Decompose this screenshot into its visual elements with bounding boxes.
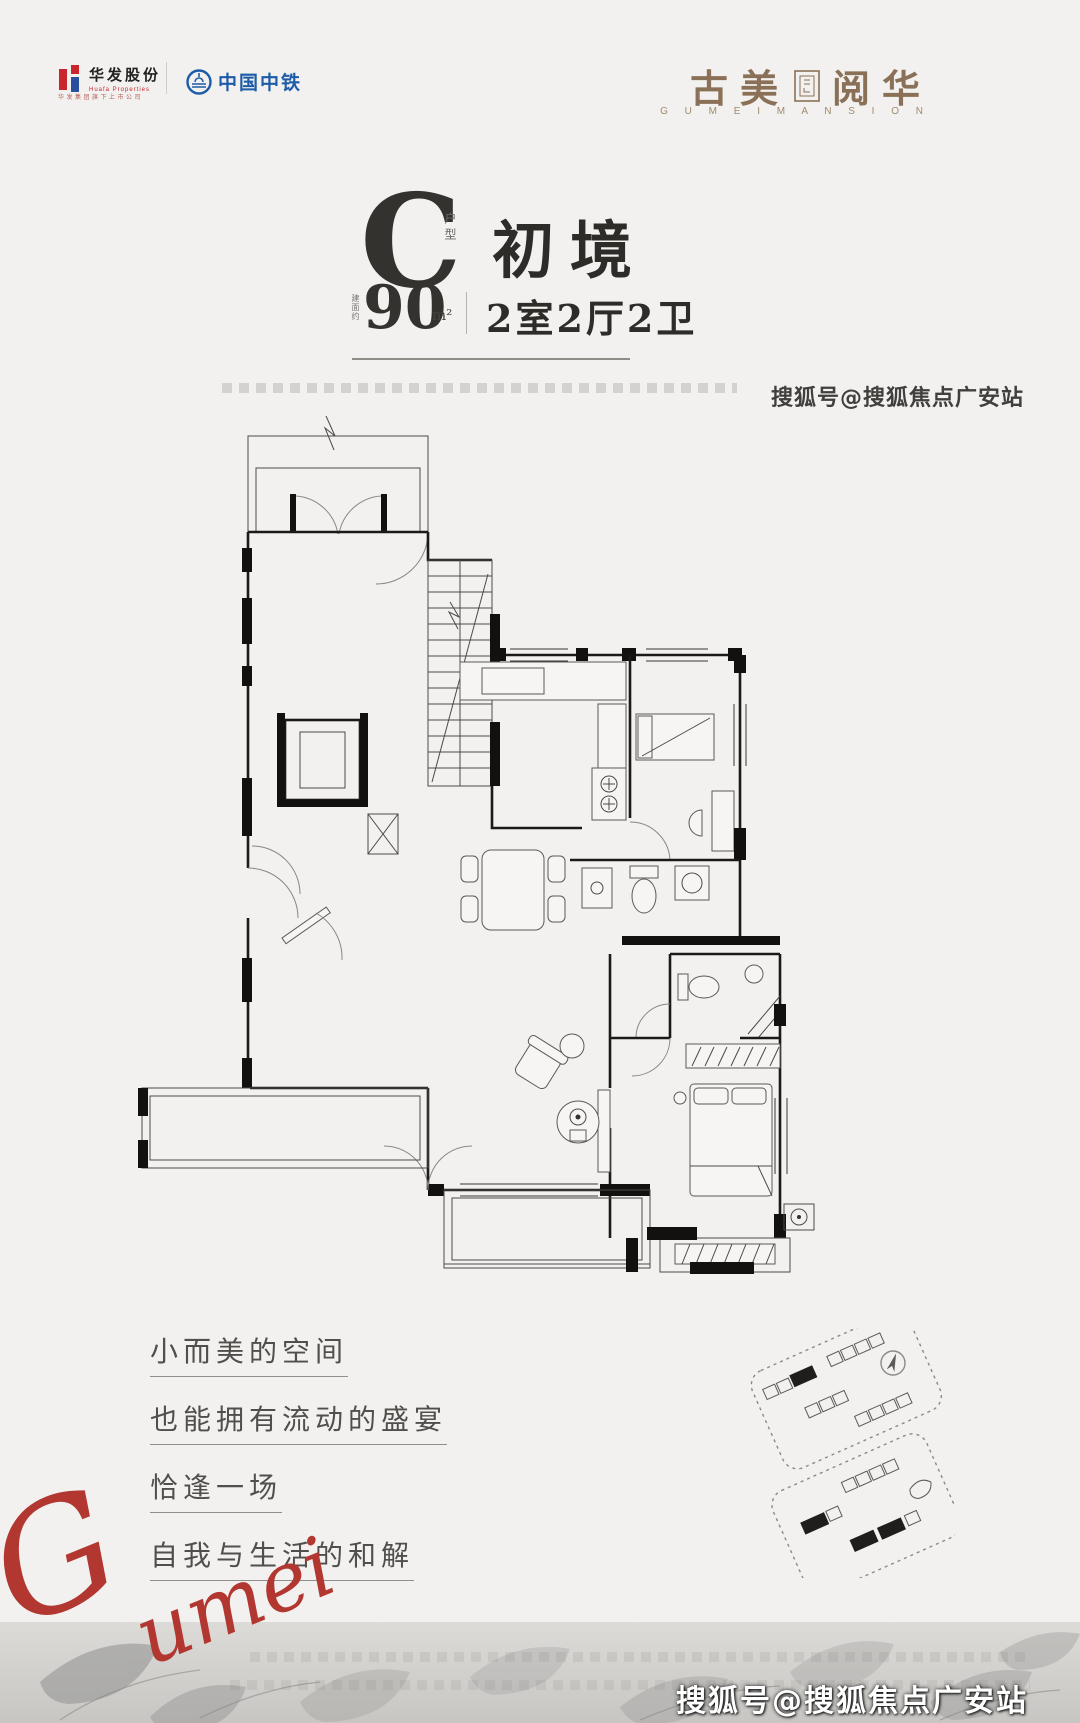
- area-unit: m²: [432, 306, 452, 324]
- north-compass-icon: [878, 1348, 908, 1378]
- logo-divider: [166, 62, 167, 94]
- faint-disclaimer-strip: [250, 1652, 1030, 1662]
- brand-cn-right: 阅华: [832, 58, 932, 113]
- floor-plan-drawing: [130, 398, 850, 1278]
- brand-en: G U M E I M A N S I O N: [660, 106, 930, 117]
- unit-type-label: 户型: [442, 212, 459, 244]
- huafa-tagline: 华发集团旗下上市公司: [58, 92, 143, 101]
- watermark-bottom: 搜狐号@搜狐焦点广安站: [676, 1676, 1028, 1720]
- brand-cn-left: 古美: [690, 58, 790, 113]
- area-prefix: 建面约: [350, 294, 361, 321]
- crec-emblem-icon: [186, 69, 212, 95]
- crec-name: 中国中铁: [218, 68, 302, 95]
- site-plan: [745, 1328, 955, 1578]
- faint-disclaimer-strip: [222, 383, 737, 393]
- slogan-line: 小而美的空间: [150, 1330, 348, 1377]
- huafa-logo: 华发股份 Huafa Properties: [58, 64, 161, 94]
- svg-text:umei: umei: [122, 1520, 340, 1685]
- huafa-name: 华发股份: [89, 64, 161, 85]
- huafa-mark-icon: [58, 64, 82, 94]
- poster-canvas: 华发股份 Huafa Properties 华发集团旗下上市公司 中国中铁 古美…: [0, 0, 1080, 1723]
- brand-seal-icon: [792, 69, 822, 103]
- signature-script: G umei: [0, 1418, 340, 1718]
- unit-rooms: 2室2厅2卫: [486, 288, 697, 343]
- brand-lockup: 古美 阅华: [690, 58, 932, 113]
- title-rule: [352, 358, 630, 360]
- unit-name: 初境: [492, 200, 648, 290]
- spec-divider: [466, 292, 467, 334]
- crec-logo: 中国中铁: [186, 68, 302, 95]
- signature-text: G: [0, 1455, 143, 1661]
